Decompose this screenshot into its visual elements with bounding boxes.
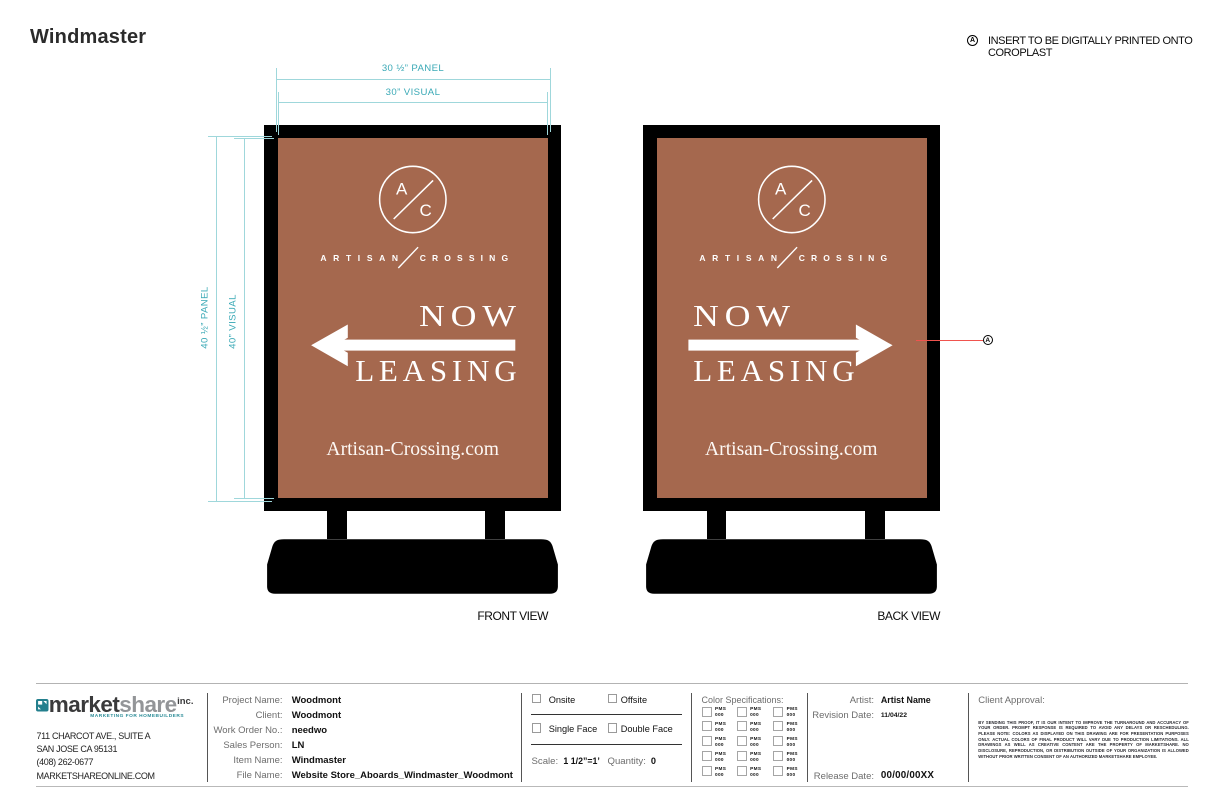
svg-text:A: A (775, 180, 787, 199)
svg-text:C: C (799, 201, 811, 220)
svg-text:C: C (420, 201, 432, 220)
svg-text:A: A (396, 180, 408, 199)
